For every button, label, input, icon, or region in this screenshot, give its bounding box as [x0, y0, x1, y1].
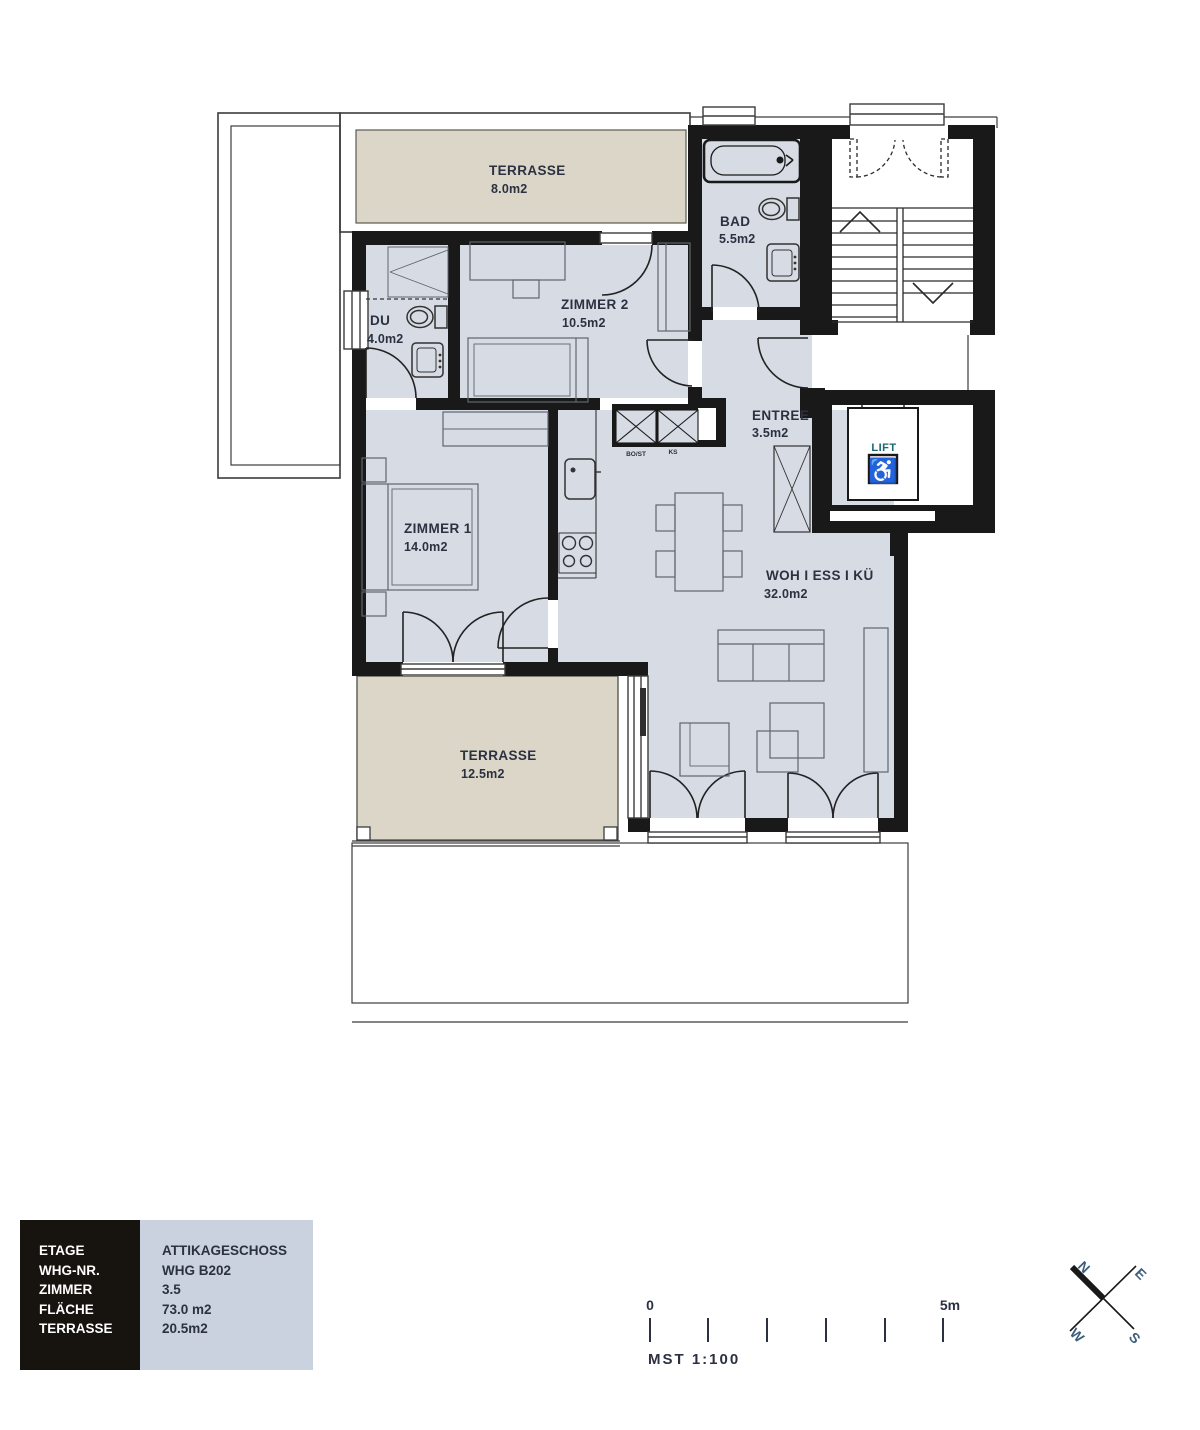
room-area-zimmer2: 10.5m2: [562, 316, 606, 330]
compass-s: S: [1126, 1329, 1144, 1347]
room-label-zimmer2: ZIMMER 2: [561, 297, 629, 312]
info-label: FLÄCHE: [39, 1300, 140, 1320]
room-label-wohnen: WOH I ESS I KÜ: [766, 568, 874, 583]
info-value: WHG B202: [162, 1261, 313, 1281]
stair-entrance-door: [850, 139, 948, 177]
stairs-up-arrow-icon: [840, 212, 880, 232]
compass: N E W S: [1067, 1258, 1150, 1347]
info-labels-column: ETAGE WHG-NR. ZIMMER FLÄCHE TERRASSE: [20, 1220, 140, 1370]
scale-bar: [650, 1318, 943, 1342]
room-area-wohnen: 32.0m2: [764, 587, 808, 601]
info-value: 73.0 m2: [162, 1300, 313, 1320]
room-label-entree: ENTREE: [752, 408, 809, 423]
scale-caption: MST 1:100: [648, 1351, 740, 1368]
kitchen-label-bo-st: BO/ST: [626, 451, 646, 458]
wheelchair-icon: ♿: [868, 457, 898, 485]
info-value: 3.5: [162, 1280, 313, 1300]
room-area-bad: 5.5m2: [719, 232, 755, 246]
room-label-lift: LIFT: [871, 442, 896, 454]
room-label-zimmer1: ZIMMER 1: [404, 521, 472, 536]
compass-north-arrow: [1072, 1267, 1103, 1298]
room-area-terrasse-top: 8.0m2: [491, 182, 527, 196]
info-value: ATTIKAGESCHOSS: [162, 1241, 313, 1261]
room-area-du: 4.0m2: [367, 332, 403, 346]
info-label: ZIMMER: [39, 1280, 140, 1300]
floorplan-page: ♿: [0, 0, 1200, 1430]
staircase: [832, 208, 973, 390]
kitchen-label-ks: KS: [668, 449, 678, 456]
info-values-column: ATTIKAGESCHOSS WHG B202 3.5 73.0 m2 20.5…: [140, 1220, 313, 1370]
info-label: ETAGE: [39, 1241, 140, 1261]
room-area-terrasse-bottom: 12.5m2: [461, 767, 505, 781]
info-label: TERRASSE: [39, 1319, 140, 1339]
apartment-info-box: ETAGE WHG-NR. ZIMMER FLÄCHE TERRASSE ATT…: [20, 1220, 313, 1370]
info-label: WHG-NR.: [39, 1261, 140, 1281]
room-label-terrasse-bottom: TERRASSE: [460, 748, 537, 763]
info-value: 20.5m2: [162, 1319, 313, 1339]
room-label-terrasse-top: TERRASSE: [489, 163, 566, 178]
room-area-entree: 3.5m2: [752, 426, 788, 440]
room-area-zimmer1: 14.0m2: [404, 540, 448, 554]
room-label-du: DU: [370, 313, 390, 328]
room-label-bad: BAD: [720, 214, 750, 229]
scale-five-label: 5m: [940, 1297, 960, 1313]
scale-zero-label: 0: [646, 1297, 654, 1313]
floorplan-drawing: ♿: [0, 0, 1200, 1430]
compass-w: W: [1067, 1325, 1088, 1346]
